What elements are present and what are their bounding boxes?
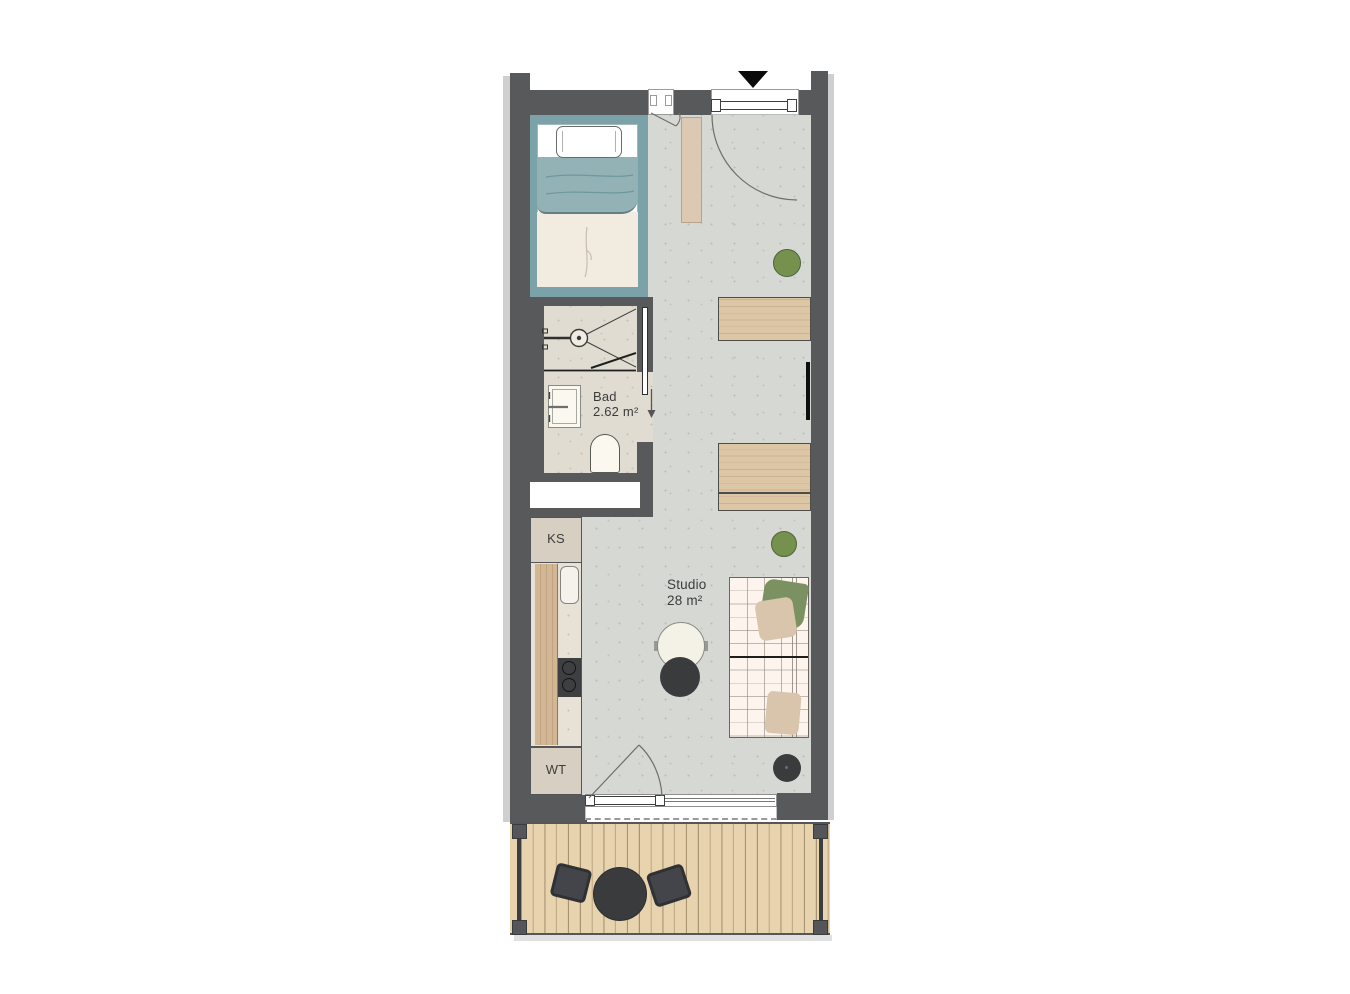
desk-lower — [718, 443, 811, 511]
balcony-door-jamb — [585, 795, 595, 806]
entrance-door-hinge — [711, 99, 721, 112]
balcony-door-leaf — [587, 796, 660, 805]
railing-post — [813, 920, 828, 935]
bathroom-label: Bad 2.62 m² — [593, 389, 638, 419]
stool-green — [771, 531, 797, 557]
wall-shadow-right — [828, 74, 834, 820]
balcony-shadow — [514, 935, 832, 941]
wall-right — [811, 71, 828, 820]
dining-chair — [660, 657, 700, 697]
entrance-door-leaf — [713, 101, 797, 110]
studio-name: Studio — [667, 577, 706, 593]
window-sill — [585, 807, 777, 820]
bed-pillow — [556, 126, 622, 158]
balcony-rail — [517, 838, 521, 921]
kitchen-sink — [560, 566, 579, 604]
washer-label: WT — [530, 762, 582, 777]
balcony-door-jamb — [655, 795, 665, 806]
balcony-table — [593, 867, 647, 921]
cooktop-burner — [562, 661, 576, 675]
studio-area: 28 m² — [667, 593, 706, 609]
daybed-center-divider — [730, 656, 808, 658]
entry-wardrobe — [681, 117, 702, 223]
bathroom-area: 2.62 m² — [593, 404, 638, 419]
wall-top-segment — [797, 90, 811, 115]
shaft-door-jamb — [650, 95, 657, 106]
wall-bottom-left — [510, 795, 587, 822]
tv-wall-mounted — [806, 362, 810, 420]
pillow-tuck-line — [562, 131, 563, 152]
closet — [528, 482, 640, 508]
entrance-arrow-icon — [738, 71, 768, 88]
wall-top-segment — [673, 90, 713, 115]
fridge-label: KS — [530, 531, 582, 546]
wall-left — [510, 73, 530, 822]
cushion-beige — [754, 596, 798, 641]
cushion-beige — [764, 691, 802, 736]
fridge-text: KS — [547, 531, 565, 546]
cooktop-burner — [562, 678, 576, 692]
floor-plan: Bad 2.62 m² KS WT — [0, 0, 1350, 994]
kitchen-worktop-wood — [535, 564, 558, 745]
wall-shadow-left — [503, 76, 510, 822]
balcony-window-glazing — [664, 798, 775, 802]
bed-blanket — [537, 157, 638, 214]
bathroom-sink-basin — [552, 389, 577, 424]
desk-upper — [718, 297, 811, 341]
balcony-rail — [819, 838, 823, 921]
entrance-door-hinge — [787, 99, 797, 112]
studio-label: Studio 28 m² — [667, 577, 706, 609]
bathroom-sliding-door — [642, 307, 648, 395]
pillow-tuck-line — [615, 131, 616, 152]
wall-top-segment — [530, 90, 649, 115]
toilet — [590, 434, 620, 473]
stool-dark — [773, 754, 801, 782]
bathroom-name: Bad — [593, 389, 638, 404]
stool-dark-dot — [785, 766, 788, 769]
cooktop — [558, 658, 581, 697]
stool-green — [773, 249, 801, 277]
railing-post — [512, 920, 527, 935]
shaft-door-jamb — [665, 95, 672, 106]
bed-sheet — [537, 212, 638, 287]
wall-bottom-right — [777, 793, 828, 820]
railing-post — [813, 824, 828, 839]
shaft-door-opening — [648, 89, 674, 115]
railing-post — [512, 824, 527, 839]
desk-lower-divider — [719, 492, 810, 494]
washer-text: WT — [546, 762, 567, 777]
